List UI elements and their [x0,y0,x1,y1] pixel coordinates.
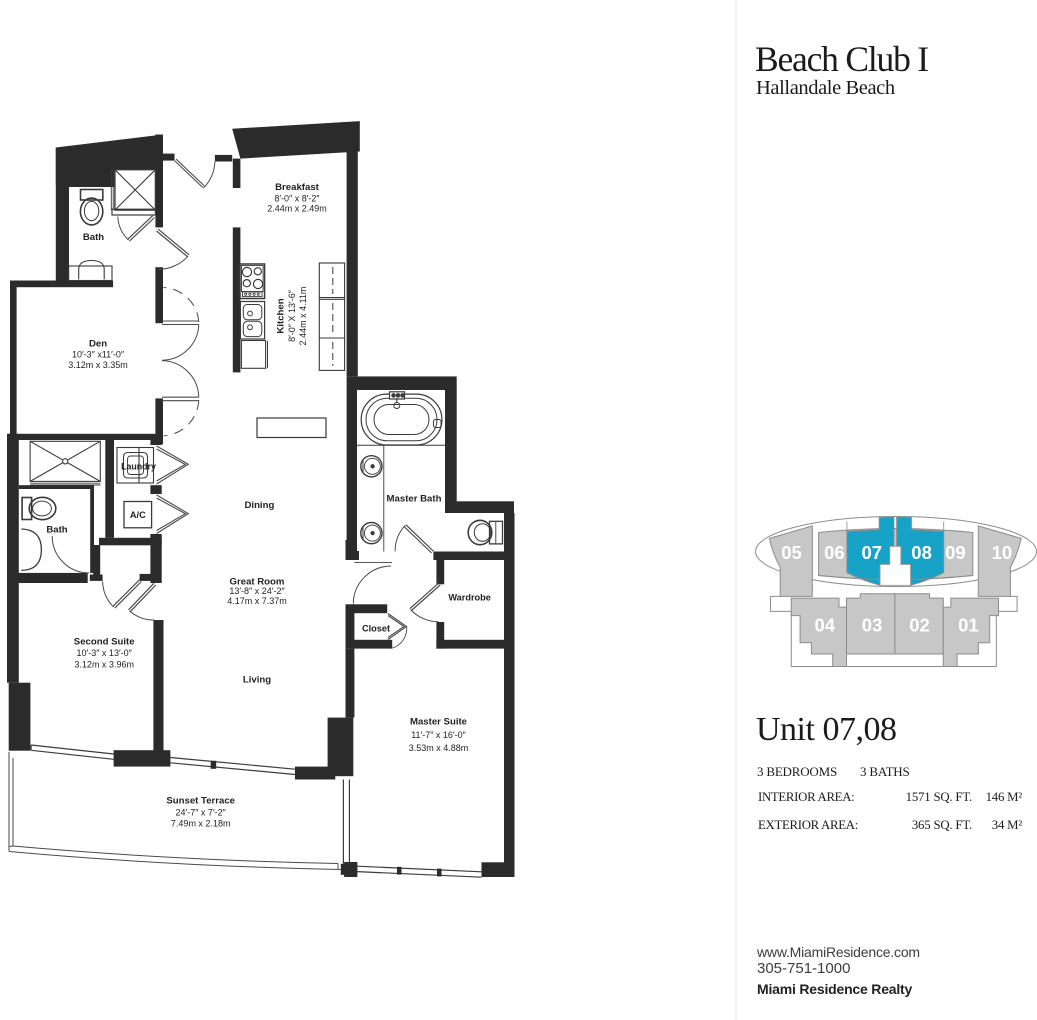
svg-text:07: 07 [862,542,883,563]
svg-text:3.53m x 4.88m: 3.53m x 4.88m [409,743,469,753]
svg-text:4.17m x 7.37m: 4.17m x 7.37m [227,596,287,606]
svg-text:Breakfast: Breakfast [275,182,320,193]
svg-text:04: 04 [815,615,836,636]
svg-text:7.49m x 2.18m: 7.49m x 2.18m [171,819,231,829]
svg-text:Bath: Bath [46,525,67,536]
svg-text:2.44m x 2.49m: 2.44m x 2.49m [267,204,327,214]
svg-text:Closet: Closet [362,624,390,634]
svg-text:02: 02 [909,615,930,636]
svg-text:03: 03 [862,615,883,636]
svg-text:8′-0″ X 13′-6″: 8′-0″ X 13′-6″ [287,289,297,342]
svg-text:06: 06 [824,542,845,563]
svg-text:Master Suite: Master Suite [410,717,467,728]
svg-text:Kitchen: Kitchen [276,298,287,333]
svg-text:Dining: Dining [244,500,274,511]
svg-text:Den: Den [89,339,107,350]
svg-text:09: 09 [945,542,966,563]
svg-text:Laundry: Laundry [121,462,156,472]
svg-text:Living: Living [243,675,271,686]
svg-text:05: 05 [781,542,802,563]
svg-text:2.44m x 4.11m: 2.44m x 4.11m [298,287,308,346]
svg-text:8′-0″ x 8′-2″: 8′-0″ x 8′-2″ [274,194,320,204]
svg-text:3.12m x 3.35m: 3.12m x 3.35m [68,360,128,370]
svg-text:3.12m x 3.96m: 3.12m x 3.96m [74,660,134,670]
svg-text:Wardrobe: Wardrobe [448,593,491,603]
svg-text:08: 08 [911,542,932,563]
svg-text:11′-7″ x 16′-0″: 11′-7″ x 16′-0″ [411,730,466,740]
svg-text:10: 10 [992,542,1013,563]
svg-text:Second Suite: Second Suite [74,637,135,648]
svg-text:Bath: Bath [83,232,104,243]
svg-text:Sunset Terrace: Sunset Terrace [166,796,235,807]
svg-text:10′-3″ x 13′-0″: 10′-3″ x 13′-0″ [77,648,133,658]
svg-text:13′-8″ x 24′-2″: 13′-8″ x 24′-2″ [229,586,285,596]
svg-text:10′-3″ x11′-0″: 10′-3″ x11′-0″ [72,350,125,360]
svg-text:01: 01 [958,615,979,636]
svg-text:24′-7″ x 7′-2″: 24′-7″ x 7′-2″ [176,808,227,818]
svg-text:A/C: A/C [130,510,146,520]
svg-text:Master Bath: Master Bath [387,494,442,505]
